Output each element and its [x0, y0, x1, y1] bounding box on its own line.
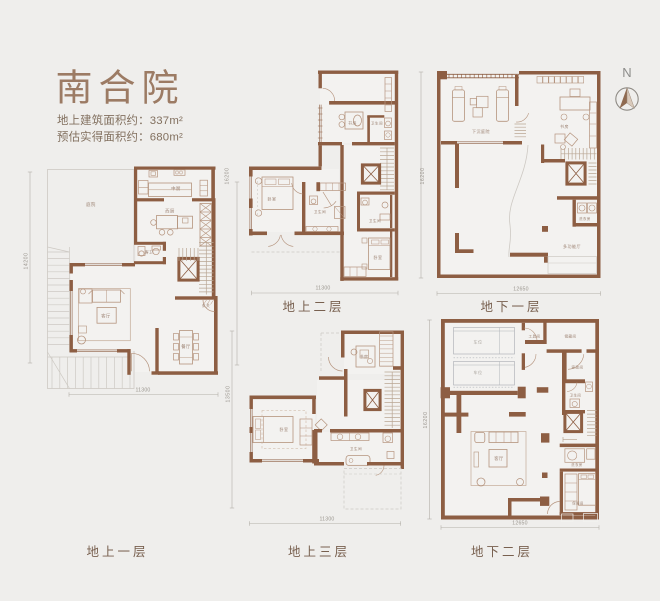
svg-text:车位: 车位 — [474, 339, 483, 345]
svg-text:卫生间: 卫生间 — [570, 393, 582, 398]
svg-text:储藏间: 储藏间 — [565, 334, 577, 339]
svg-text:地上建筑面积约：337m²: 地上建筑面积约：337m² — [57, 113, 183, 127]
svg-text:地下二层: 地下二层 — [471, 545, 533, 559]
svg-text:12650: 12650 — [512, 521, 527, 527]
svg-text:客厅: 客厅 — [101, 313, 111, 320]
svg-text:16200: 16200 — [225, 168, 231, 185]
svg-text:卫生间: 卫生间 — [369, 218, 381, 223]
svg-text:书房: 书房 — [348, 120, 357, 126]
svg-text:地上一层: 地上一层 — [86, 545, 148, 559]
svg-text:书房: 书房 — [360, 353, 369, 359]
svg-text:11300: 11300 — [319, 517, 334, 523]
svg-text:餐厅: 餐厅 — [181, 343, 191, 350]
svg-text:卧室: 卧室 — [374, 254, 383, 260]
svg-text:下沉庭院: 下沉庭院 — [472, 128, 490, 134]
svg-text:N: N — [622, 65, 631, 80]
svg-text:客卫: 客卫 — [145, 250, 154, 255]
svg-text:家政间: 家政间 — [572, 365, 584, 370]
svg-text:南合院: 南合院 — [56, 68, 179, 109]
svg-text:11300: 11300 — [135, 388, 150, 394]
svg-text:多功能厅: 多功能厅 — [563, 243, 581, 249]
svg-text:预估实得面积约：680m²: 预估实得面积约：680m² — [57, 130, 183, 144]
svg-text:卧室: 卧室 — [280, 426, 289, 432]
svg-text:洗衣房: 洗衣房 — [571, 462, 583, 467]
svg-text:16200: 16200 — [423, 412, 429, 429]
svg-text:11300: 11300 — [315, 286, 330, 292]
svg-text:地上三层: 地上三层 — [288, 545, 350, 559]
svg-text:车位: 车位 — [474, 369, 483, 375]
svg-text:书房: 书房 — [560, 123, 569, 129]
svg-text:卫生间: 卫生间 — [371, 121, 383, 126]
svg-text:卫生间: 卫生间 — [314, 209, 326, 214]
svg-text:保姆间: 保姆间 — [572, 501, 583, 506]
svg-text:14200: 14200 — [24, 253, 30, 270]
svg-text:12650: 12650 — [513, 287, 528, 293]
svg-text:庭院: 庭院 — [86, 201, 96, 208]
svg-text:工具间: 工具间 — [529, 334, 541, 339]
svg-text:地上二层: 地上二层 — [282, 300, 344, 314]
svg-text:客厅: 客厅 — [494, 455, 504, 462]
svg-text:16200: 16200 — [420, 168, 426, 185]
svg-text:13500: 13500 — [226, 386, 232, 403]
svg-text:中厨: 中厨 — [171, 185, 181, 192]
svg-text:卫生间: 卫生间 — [350, 446, 362, 451]
svg-text:洗衣房: 洗衣房 — [579, 216, 591, 221]
svg-text:地下一层: 地下一层 — [480, 300, 542, 314]
svg-text:玄关: 玄关 — [202, 303, 211, 308]
svg-text:卧室: 卧室 — [268, 196, 277, 202]
